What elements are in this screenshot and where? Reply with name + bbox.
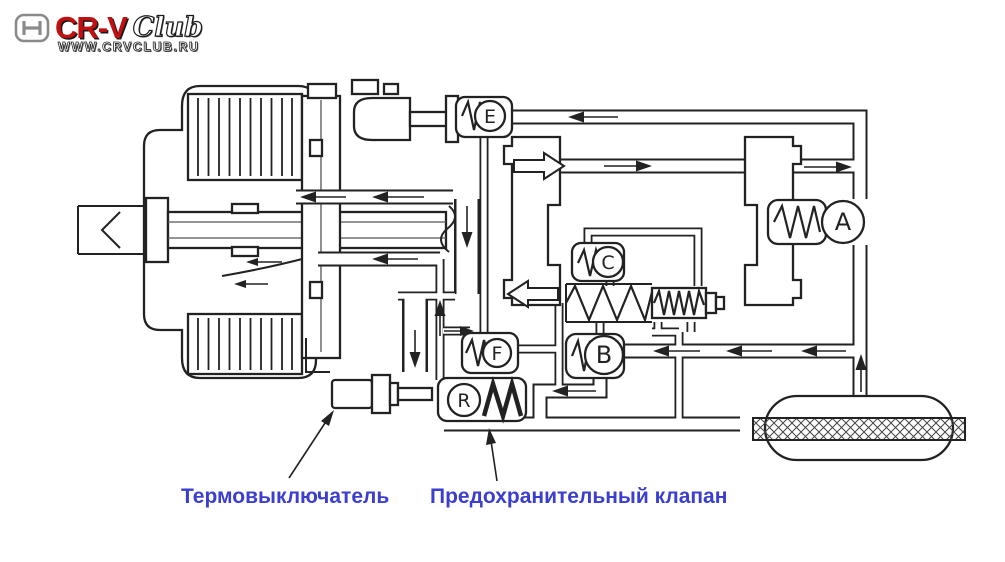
crv-club-logo: CR-V Club xyxy=(14,12,203,43)
oil-strainer xyxy=(753,396,965,460)
valve-a-label: A xyxy=(835,208,852,236)
cooling-fins-top xyxy=(188,94,302,180)
strainer-screen xyxy=(753,418,965,440)
valve-r-label: R xyxy=(457,390,470,412)
label-pointer-relief xyxy=(486,428,497,481)
valve-e: E xyxy=(456,97,512,137)
honda-h-icon xyxy=(14,13,50,43)
caption-thermal-switch: Термовыключатель xyxy=(181,485,389,508)
valve-f: F xyxy=(462,333,518,373)
valve-c-label: C xyxy=(601,252,614,274)
cooling-fins-bottom xyxy=(188,314,302,374)
transmission-hydraulic-diagram: E A C B F R xyxy=(0,0,1005,562)
label-pointer-thermal xyxy=(289,410,334,478)
valve-b: B xyxy=(566,334,624,378)
valve-c: C xyxy=(572,243,624,281)
logo-brand-text: CR-V xyxy=(55,12,127,43)
relief-valve-r: R xyxy=(438,378,526,421)
pump-piston xyxy=(354,98,410,140)
caption-relief-valve: Предохранительный клапан xyxy=(430,485,727,508)
valve-b-label: B xyxy=(596,341,612,369)
logo-url-text: WWW.CRVCLUB.RU xyxy=(58,40,200,54)
valve-f-label: F xyxy=(492,343,503,365)
logo-club-text: Club xyxy=(133,14,203,41)
diagram-page: CR-V Club WWW.CRVCLUB.RU xyxy=(0,0,1005,562)
regulator-spring xyxy=(566,284,724,322)
valve-a: A xyxy=(768,200,864,244)
spring-icon xyxy=(566,286,652,320)
valve-e-label: E xyxy=(484,106,496,128)
